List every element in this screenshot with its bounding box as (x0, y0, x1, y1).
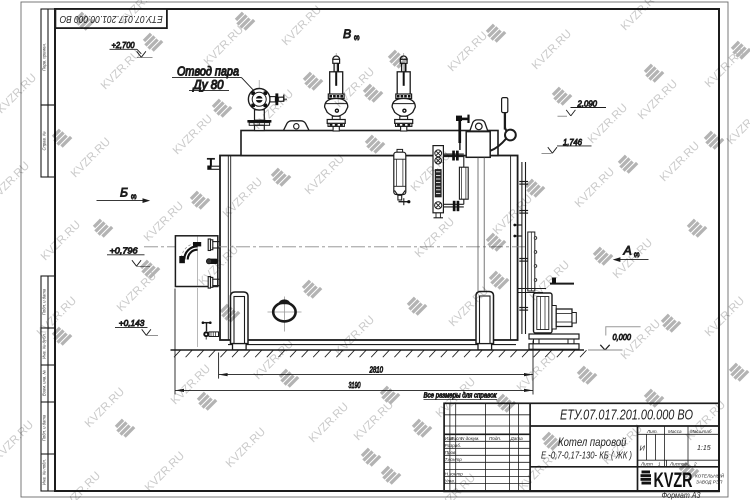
svg-text:1: 1 (658, 461, 661, 466)
svg-text:KVZR.RU: KVZR.RU (39, 219, 83, 263)
svg-text:KVZR.RU: KVZR.RU (0, 419, 36, 463)
svg-text:0,000: 0,000 (613, 332, 632, 342)
svg-text:KVZR.RU: KVZR.RU (703, 295, 747, 339)
svg-text:KVZR.RU: KVZR.RU (59, 470, 103, 500)
svg-text:KVZR.RU: KVZR.RU (586, 102, 630, 146)
svg-text:1,746: 1,746 (563, 137, 582, 147)
svg-text:KVZR.RU: KVZR.RU (0, 72, 39, 116)
svg-text:(2): (2) (354, 35, 360, 40)
svg-text:KVZR.RU: KVZR.RU (280, 4, 324, 48)
svg-text:KVZR.RU: KVZR.RU (658, 140, 702, 184)
svg-text:(2): (2) (131, 194, 137, 199)
svg-text:KVZR.RU: KVZR.RU (573, 166, 617, 210)
svg-text:KVZR.RU: KVZR.RU (224, 426, 268, 470)
svg-text:Перв. примен.: Перв. примен. (42, 43, 47, 71)
svg-text:KVZR.RU: KVZR.RU (619, 0, 663, 33)
svg-text:Лит.: Лит. (646, 429, 658, 434)
svg-text:KVZR.RU: KVZR.RU (515, 350, 559, 394)
svg-text:Б: Б (120, 186, 128, 200)
svg-text:1:15: 1:15 (697, 445, 711, 452)
svg-text:И: И (640, 444, 646, 453)
svg-text:KVZR.RU: KVZR.RU (530, 28, 574, 72)
svg-text:ЕТУ.07.017.201.00.000 ВО: ЕТУ.07.017.201.00.000 ВО (60, 13, 163, 24)
svg-text:+2,700: +2,700 (112, 40, 135, 50)
svg-text:2: 2 (693, 461, 697, 466)
svg-text:ЗАВОД РЭП: ЗАВОД РЭП (696, 480, 723, 485)
svg-text:KVZR.RU: KVZR.RU (99, 48, 143, 92)
svg-text:KVZR.RU: KVZR.RU (171, 113, 215, 157)
svg-text:Пров.: Пров. (445, 450, 457, 455)
svg-text:Разраб.: Разраб. (445, 443, 462, 448)
svg-text:+0,796: +0,796 (110, 245, 138, 255)
svg-text:Т.контр: Т.контр (445, 457, 463, 462)
svg-text:3190: 3190 (349, 381, 361, 390)
svg-text:Справ. №: Справ. № (42, 131, 47, 150)
svg-text:KVZR.RU: KVZR.RU (725, 103, 750, 147)
svg-text:Инв. № подл.: Инв. № подл. (42, 459, 47, 485)
svg-text:КОТЕЛЬНЫЙ: КОТЕЛЬНЫЙ (695, 472, 725, 479)
svg-text:В: В (343, 27, 351, 41)
svg-text:+0,143: +0,143 (119, 318, 145, 328)
svg-text:KVZR.RU: KVZR.RU (352, 399, 396, 443)
svg-text:Утв.: Утв. (445, 478, 455, 483)
svg-text:Формат А3: Формат А3 (662, 491, 702, 500)
svg-text:Взам. инв. №: Взам. инв. № (42, 370, 47, 396)
svg-text:KVZR.RU: KVZR.RU (69, 136, 113, 180)
svg-text:Подп.: Подп. (489, 436, 501, 441)
svg-text:KVZR.RU: KVZR.RU (0, 160, 32, 204)
svg-text:Н.контр: Н.контр (445, 471, 464, 476)
svg-text:Масса: Масса (668, 429, 682, 434)
svg-text:2,090: 2,090 (577, 98, 598, 108)
svg-text:Ду 80: Ду 80 (192, 77, 225, 92)
svg-text:ЕТУ.07.017.201.00.000 ВО: ЕТУ.07.017.201.00.000 ВО (560, 408, 693, 424)
svg-text:KVZR.RU: KVZR.RU (446, 30, 490, 74)
svg-text:KVZR.RU: KVZR.RU (307, 401, 351, 445)
svg-text:Подп. и дата: Подп. и дата (42, 414, 47, 441)
svg-text:KVZR.RU: KVZR.RU (169, 363, 213, 407)
svg-text:Лист: Лист (640, 461, 653, 466)
svg-text:N докум.: N докум. (461, 436, 480, 441)
svg-text:KVZR.RU: KVZR.RU (143, 450, 187, 494)
svg-text:KVZR: KVZR (654, 469, 693, 492)
svg-text:KVZR.RU: KVZR.RU (202, 24, 246, 68)
svg-text:Дата: Дата (510, 436, 524, 441)
svg-text:Подп. и дата: Подп. и дата (42, 288, 47, 315)
svg-text:KVZR.RU: KVZR.RU (636, 78, 680, 122)
svg-text:2810: 2810 (369, 365, 384, 374)
